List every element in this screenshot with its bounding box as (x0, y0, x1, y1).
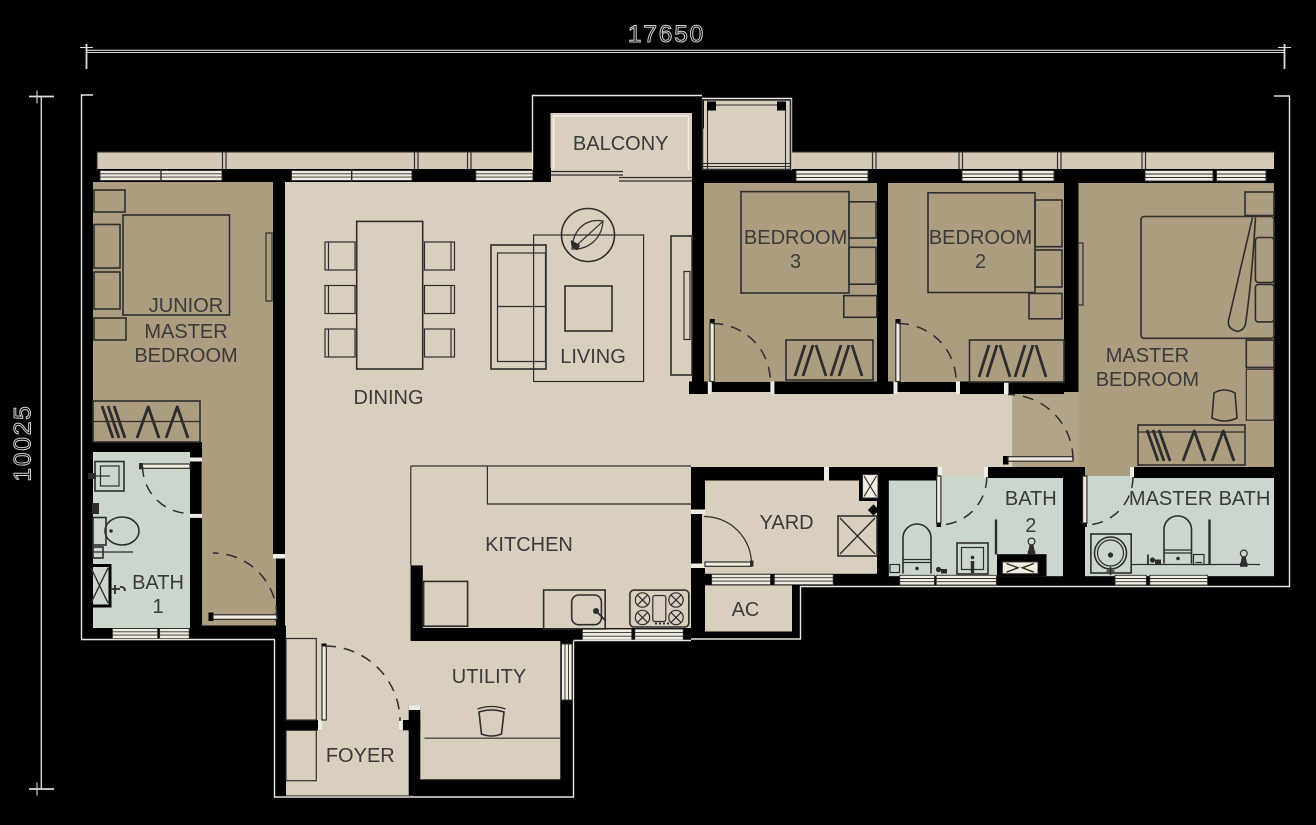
svg-text:LIVING: LIVING (560, 346, 626, 368)
svg-text:KITCHEN: KITCHEN (485, 534, 573, 556)
svg-text:BALCONY: BALCONY (573, 133, 669, 155)
svg-text:MASTER: MASTER (144, 321, 227, 343)
svg-text:DINING: DINING (354, 387, 424, 409)
svg-text:3: 3 (790, 251, 801, 273)
svg-text:10025: 10025 (10, 404, 37, 481)
svg-text:BATH: BATH (1005, 488, 1057, 510)
svg-text:BEDROOM: BEDROOM (134, 345, 237, 367)
svg-text:FOYER: FOYER (326, 745, 395, 767)
svg-text:BEDROOM: BEDROOM (744, 227, 847, 249)
svg-text:MASTER: MASTER (1106, 345, 1189, 367)
svg-text:1: 1 (152, 596, 163, 618)
svg-text:2: 2 (975, 251, 986, 273)
svg-text:BEDROOM: BEDROOM (1096, 369, 1199, 391)
svg-text:BATH: BATH (132, 572, 184, 594)
svg-text:17650: 17650 (628, 21, 705, 48)
svg-text:2: 2 (1025, 515, 1036, 537)
svg-text:JUNIOR: JUNIOR (149, 295, 223, 317)
svg-text:BEDROOM: BEDROOM (929, 227, 1032, 249)
svg-text:AC: AC (732, 599, 760, 621)
svg-text:YARD: YARD (760, 512, 814, 534)
svg-text:MASTER: MASTER (1129, 488, 1212, 510)
svg-text:UTILITY: UTILITY (452, 666, 526, 688)
svg-text:BATH: BATH (1219, 488, 1271, 510)
